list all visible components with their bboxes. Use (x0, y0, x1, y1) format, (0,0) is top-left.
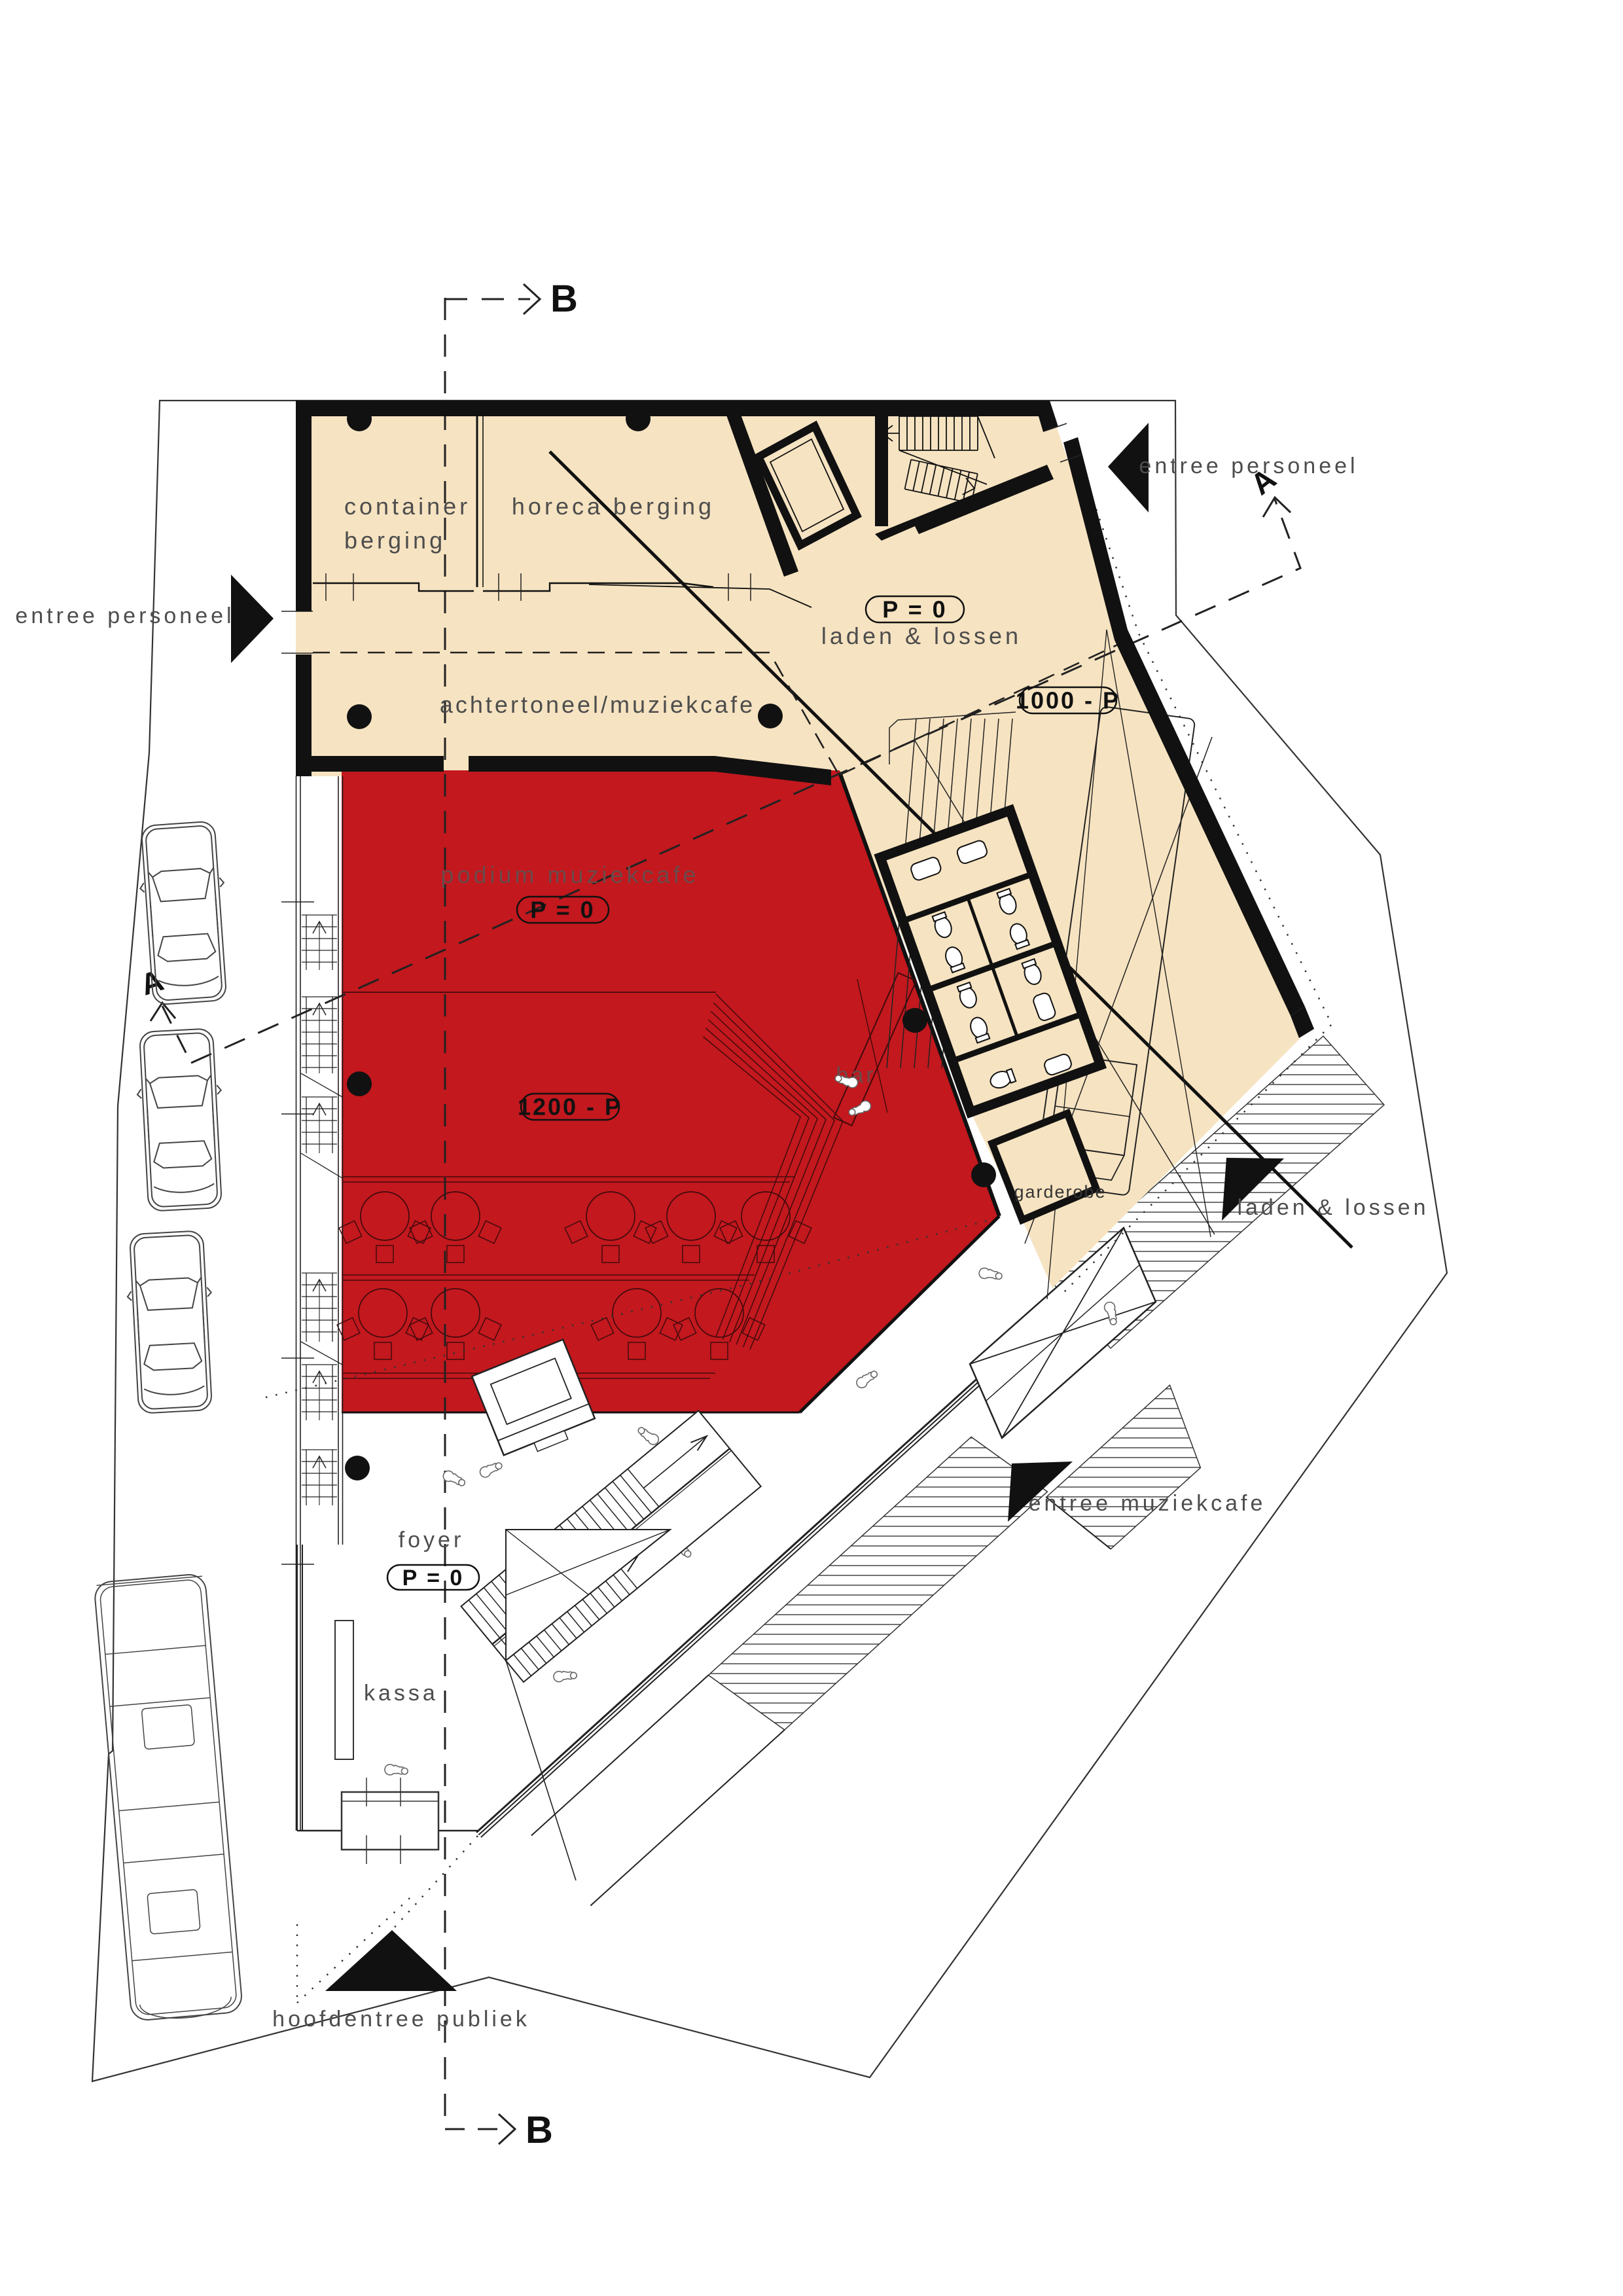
svg-text:foyer: foyer (399, 1528, 465, 1552)
svg-text:P = 0: P = 0 (530, 897, 595, 924)
svg-text:podium muziekcafe: podium muziekcafe (440, 861, 699, 888)
svg-text:laden & lossen: laden & lossen (821, 622, 1022, 649)
svg-text:1000 - P: 1000 - P (1016, 687, 1120, 714)
svg-text:B: B (550, 278, 578, 320)
svg-text:kassa: kassa (364, 1681, 438, 1706)
svg-text:container: container (344, 493, 471, 520)
svg-text:P = 0: P = 0 (402, 1566, 465, 1590)
svg-text:entree personeel: entree personeel (15, 603, 234, 628)
svg-text:1200 - P: 1200 - P (518, 1094, 622, 1121)
svg-text:entree personeel: entree personeel (1139, 454, 1358, 478)
svg-text:P = 0: P = 0 (882, 596, 947, 623)
svg-text:entree muziekcafe: entree muziekcafe (1029, 1491, 1266, 1516)
svg-text:hoofdentree publiek: hoofdentree publiek (272, 2007, 530, 2032)
svg-text:berging: berging (344, 527, 446, 554)
svg-text:garderobe: garderobe (1014, 1182, 1106, 1202)
svg-text:achtertoneel/muziekcafe: achtertoneel/muziekcafe (440, 691, 755, 718)
svg-text:laden & lossen: laden & lossen (1237, 1195, 1429, 1220)
svg-text:B: B (526, 2109, 553, 2151)
svg-text:horeca berging: horeca berging (512, 493, 715, 520)
